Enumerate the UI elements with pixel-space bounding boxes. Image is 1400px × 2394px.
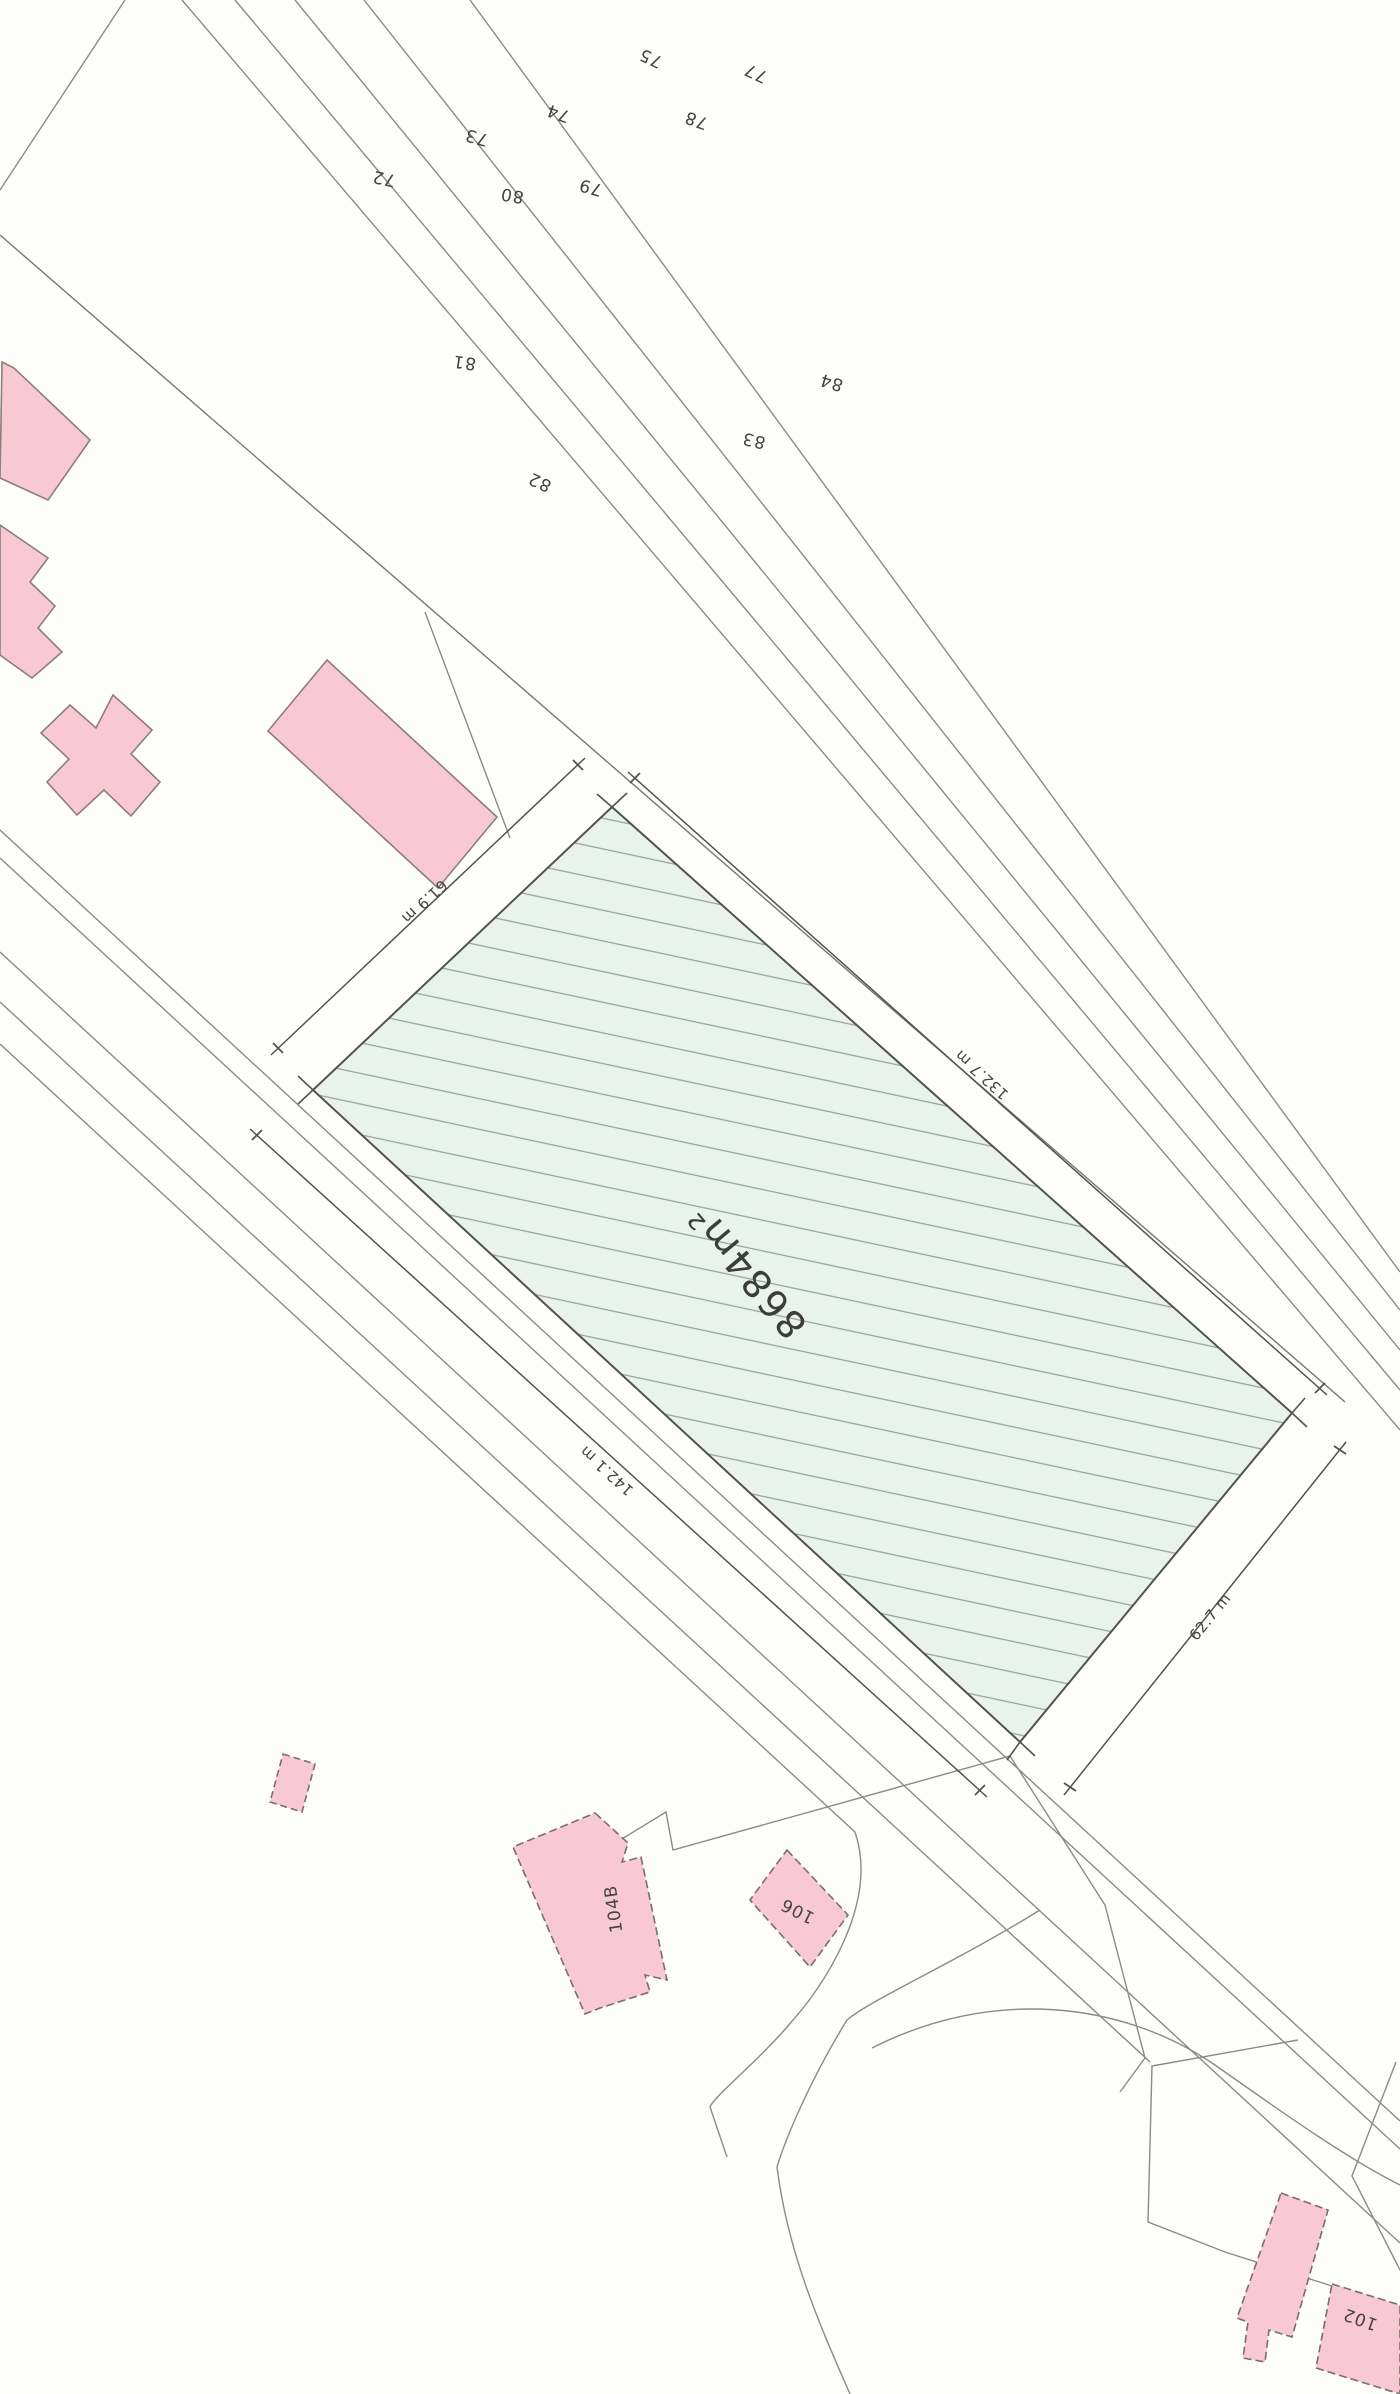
house-number: 80 — [499, 183, 526, 207]
site-plan-canvas: 72 73 74 75 77 78 79 80 81 82 83 84 61.9… — [0, 0, 1400, 2394]
house-number: 81 — [451, 350, 477, 373]
site-plan-scan: 72 73 74 75 77 78 79 80 81 82 83 84 61.9… — [0, 0, 1400, 2394]
